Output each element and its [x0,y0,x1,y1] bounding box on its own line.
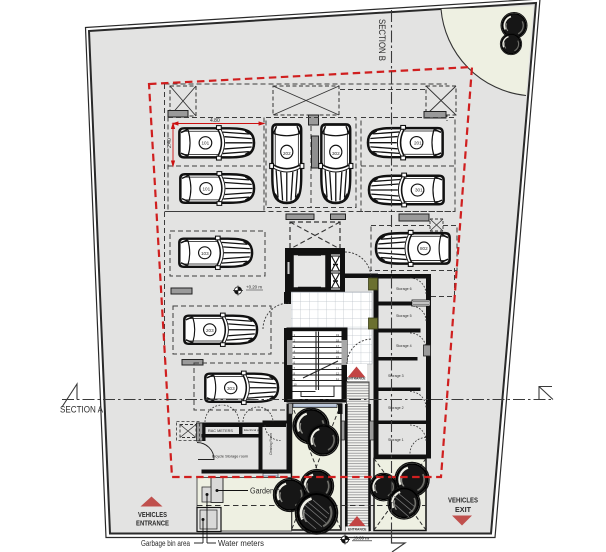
svg-text:Storage 2: Storage 2 [388,406,404,410]
svg-text:Water meters: Water meters [218,539,264,548]
svg-text:Storage 5: Storage 5 [396,314,412,318]
svg-text:Storage 3: Storage 3 [388,374,404,378]
svg-text:SECTION A: SECTION A [60,405,103,415]
svg-text:13: 13 [336,366,340,370]
svg-text:16: 16 [336,350,340,354]
svg-text:302: 302 [332,151,340,156]
svg-text:VEHICLES: VEHICLES [448,496,478,505]
svg-text:+0.20 m: +0.20 m [246,285,262,290]
svg-text:10: 10 [294,383,298,387]
svg-text:Bicycle Storage room: Bicycle Storage room [212,455,248,459]
svg-text:Storage 4: Storage 4 [396,344,412,348]
svg-text:Electrical p.: Electrical p. [244,428,260,432]
svg-text:101: 101 [202,141,210,146]
svg-text:±0.00 m: ±0.00 m [353,536,369,541]
svg-text:103: 103 [201,251,209,256]
svg-text:ENTRANCE: ENTRANCE [347,377,366,381]
svg-text:303: 303 [227,386,235,391]
svg-text:EXIT: EXIT [455,505,471,514]
svg-text:203: 203 [206,328,214,333]
svg-text:ENTRANCE: ENTRANCE [348,528,367,532]
svg-text:Garbage bin area: Garbage bin area [141,539,190,548]
svg-text:12: 12 [336,372,340,376]
svg-text:18: 18 [336,339,340,343]
svg-text:802: 802 [420,246,428,251]
svg-text:Storage 6: Storage 6 [396,287,412,291]
svg-text:202: 202 [283,151,291,156]
svg-text:Storage 1: Storage 1 [388,438,404,442]
svg-text:ENTRANCE: ENTRANCE [136,519,169,528]
svg-text:Garden h: Garden h [250,487,280,496]
svg-text:4.80: 4.80 [210,118,220,124]
svg-text:2.40: 2.40 [167,138,173,148]
svg-text:101: 101 [203,187,211,192]
svg-text:11: 11 [336,377,339,381]
svg-text:17: 17 [336,344,340,348]
svg-text:19: 19 [336,333,340,337]
svg-text:RAC METERS: RAC METERS [208,429,233,433]
svg-text:SECTION B: SECTION B [377,19,387,61]
svg-text:301: 301 [415,188,423,193]
svg-text:201: 201 [414,141,422,146]
svg-text:Cleaning Room: Cleaning Room [269,433,273,455]
svg-text:15: 15 [336,355,340,359]
